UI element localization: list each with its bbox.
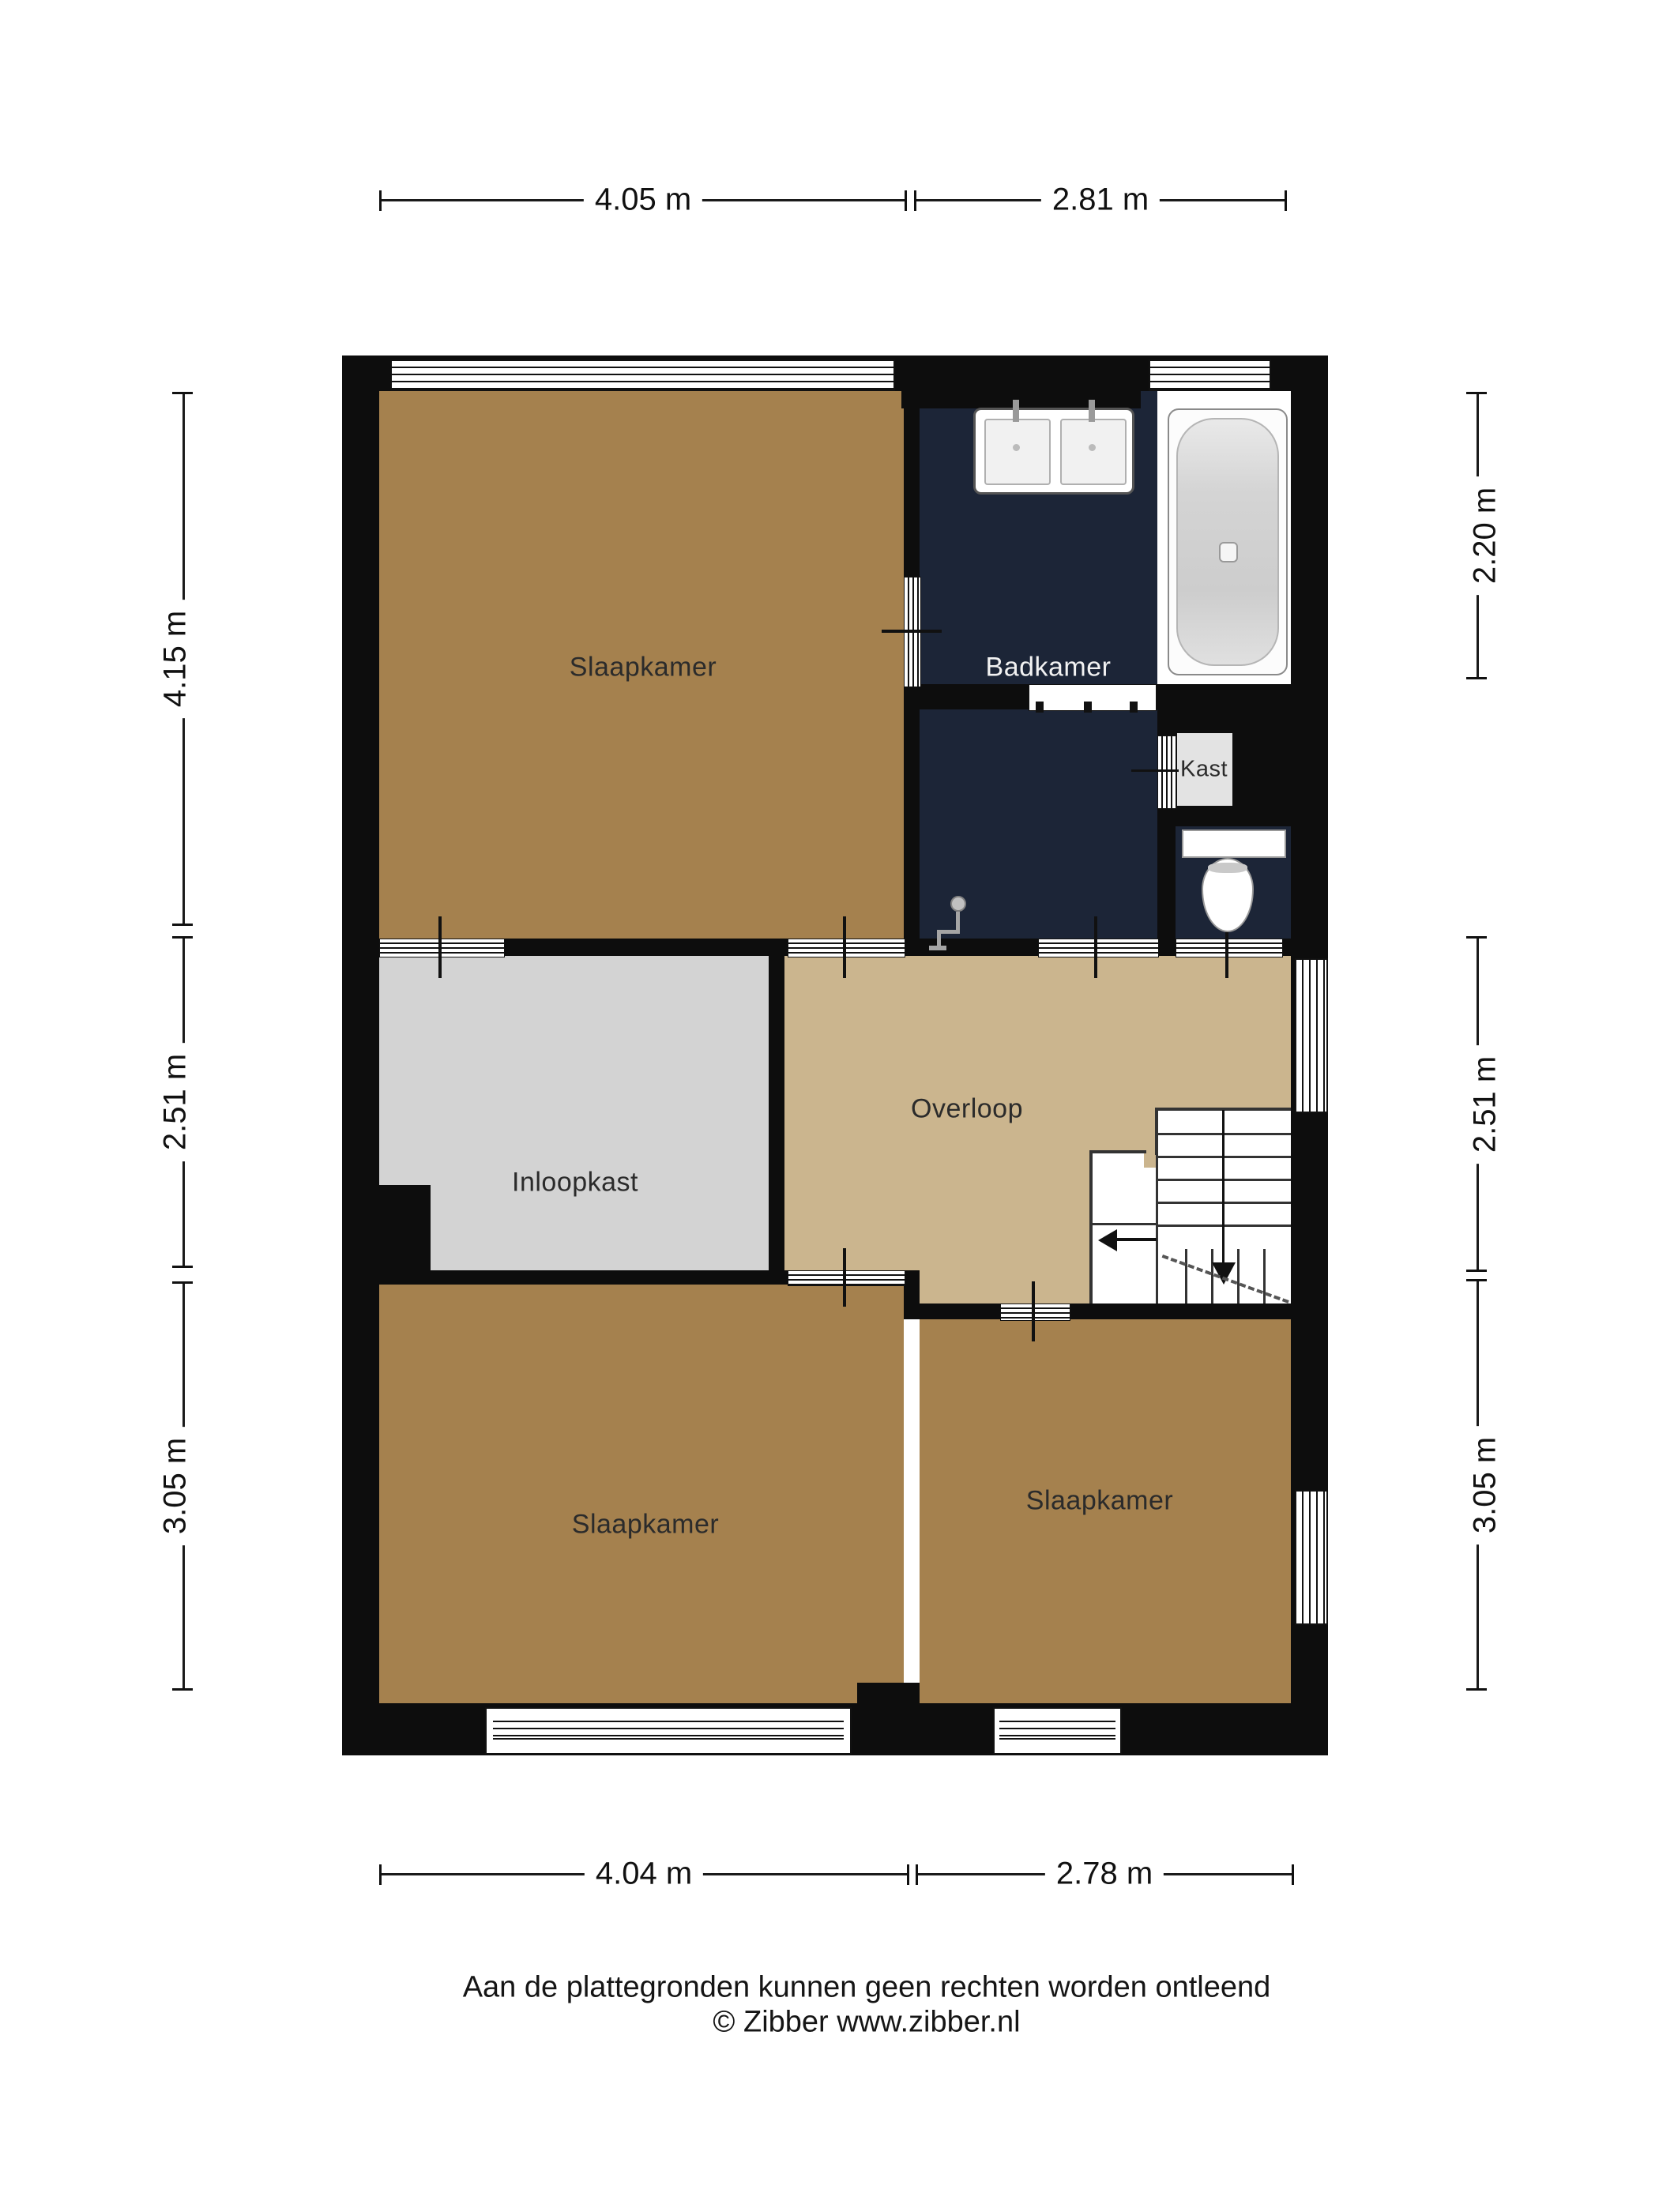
door-tick bbox=[438, 916, 442, 978]
room-label-closet: Kast bbox=[1180, 757, 1228, 783]
stair-tread bbox=[1157, 1179, 1292, 1181]
dim-tick bbox=[1466, 1270, 1487, 1272]
room-label-bathroom: Badkamer bbox=[986, 653, 1112, 683]
opening-tick bbox=[1036, 702, 1044, 713]
sink-basin-left bbox=[984, 419, 1051, 485]
floor-plan: Slaapkamer Badkamer Kast Inloopkast Over… bbox=[0, 0, 1659, 2212]
sink-drain-icon bbox=[1013, 444, 1020, 451]
stairs-left-arrow-shaft bbox=[1115, 1238, 1157, 1241]
room-label-bedroom-bottom-left: Slaapkamer bbox=[572, 1510, 719, 1540]
dim-tick bbox=[914, 190, 916, 211]
dim-label-right-top: 2.20 m bbox=[1466, 476, 1505, 595]
window-bottom-left-bedroom bbox=[485, 1707, 852, 1755]
sink-drain-icon bbox=[1089, 444, 1096, 451]
stair-winder-tread bbox=[1237, 1249, 1240, 1303]
window-top-bedroom bbox=[390, 359, 895, 391]
room-walk-in-closet bbox=[379, 956, 769, 1270]
window-glazing bbox=[999, 1721, 1115, 1740]
dim-tick bbox=[172, 936, 193, 939]
stair-tread-left bbox=[1092, 1223, 1157, 1225]
stair-tread bbox=[1157, 1224, 1292, 1227]
stairs-left-arrow-icon bbox=[1098, 1229, 1117, 1251]
dim-tick bbox=[1466, 677, 1487, 679]
footer-disclaimer: Aan de plattegronden kunnen geen rechten… bbox=[463, 1971, 1271, 2005]
opening-tick bbox=[1084, 702, 1092, 713]
dim-label-right-middle: 2.51 m bbox=[1466, 1045, 1505, 1164]
dim-label-left-top: 4.15 m bbox=[156, 600, 195, 718]
dim-tick bbox=[1466, 392, 1487, 394]
dim-label-left-middle: 2.51 m bbox=[156, 1043, 195, 1161]
wall-closet-landing-divider bbox=[769, 956, 784, 1270]
dim-tick bbox=[907, 1864, 909, 1885]
door-tick bbox=[1032, 1281, 1035, 1341]
door-landing-to-bedroom-right bbox=[1000, 1303, 1070, 1321]
dim-tick bbox=[1466, 1688, 1487, 1691]
window-bottom-right-bedroom bbox=[993, 1707, 1122, 1755]
wall-middle-stub bbox=[904, 1270, 920, 1319]
toilet-cistern-icon bbox=[1182, 829, 1286, 858]
stairs-walk-line bbox=[1222, 1110, 1224, 1264]
door-shower-to-landing bbox=[1038, 939, 1159, 957]
dim-label-left-bottom: 3.05 m bbox=[156, 1427, 195, 1545]
dim-tick bbox=[379, 1864, 382, 1885]
dim-tick bbox=[1466, 1279, 1487, 1281]
window-right-bedroom bbox=[1295, 1490, 1328, 1625]
stairs-edge-top bbox=[1155, 1108, 1294, 1111]
wall-exterior-left bbox=[342, 355, 379, 1755]
stairs-notch-top bbox=[1089, 1150, 1146, 1153]
door-toilet-to-landing bbox=[1176, 939, 1283, 957]
room-label-bedroom-top-left: Slaapkamer bbox=[570, 653, 717, 683]
stair-winder-tread bbox=[1185, 1249, 1187, 1303]
wall-bump-above-sink bbox=[901, 391, 1141, 408]
dim-label-bottom-right: 2.78 m bbox=[1045, 1855, 1164, 1894]
window-top-bathroom bbox=[1149, 359, 1271, 391]
dim-tick bbox=[905, 190, 907, 211]
room-label-walk-in-closet: Inloopkast bbox=[512, 1168, 638, 1198]
wall-bottom-center-stub bbox=[857, 1683, 920, 1755]
stair-tread bbox=[1157, 1133, 1292, 1135]
dim-tick bbox=[172, 1688, 193, 1691]
wall-middle-lower-right bbox=[920, 1303, 1292, 1319]
stairs-edge-left bbox=[1089, 1150, 1093, 1303]
stair-tread bbox=[1157, 1202, 1292, 1204]
toilet-seat-line bbox=[1208, 863, 1247, 873]
dim-label-top-left: 4.05 m bbox=[584, 181, 702, 220]
dim-tick bbox=[379, 190, 382, 211]
footer-copyright: © Zibber www.zibber.nl bbox=[713, 2006, 1020, 2040]
room-label-bedroom-bottom-right: Slaapkamer bbox=[1026, 1486, 1173, 1517]
dim-tick bbox=[172, 924, 193, 926]
stairs-divider bbox=[1156, 1110, 1158, 1303]
opening-tick bbox=[1130, 702, 1138, 713]
dim-tick bbox=[172, 1281, 193, 1284]
bathtub-drain-icon bbox=[1219, 542, 1238, 562]
faucet-icon bbox=[1013, 400, 1019, 422]
door-bedroom-to-walkin-closet bbox=[379, 939, 505, 957]
dim-tick bbox=[1292, 1864, 1294, 1885]
shower-base bbox=[929, 946, 946, 950]
door-tick bbox=[882, 630, 942, 633]
door-tick bbox=[843, 1248, 846, 1307]
stair-tread bbox=[1157, 1156, 1292, 1158]
door-tick bbox=[843, 916, 846, 978]
dim-tick bbox=[1466, 936, 1487, 939]
dim-tick bbox=[172, 392, 193, 394]
stairs-landing-notch bbox=[1092, 1153, 1144, 1168]
wall-walkin-closet-notch bbox=[379, 1185, 431, 1270]
door-landing-to-bedroom-left bbox=[788, 1270, 905, 1286]
door-bedroom-to-landing bbox=[788, 939, 905, 957]
faucet-icon bbox=[1089, 400, 1095, 422]
dim-label-top-right: 2.81 m bbox=[1041, 181, 1160, 220]
room-bedroom-bottom-left bbox=[379, 1285, 904, 1703]
window-glazing bbox=[493, 1721, 844, 1740]
dim-tick bbox=[172, 1266, 193, 1268]
window-right-landing bbox=[1295, 958, 1328, 1113]
room-label-landing: Overloop bbox=[911, 1094, 1023, 1125]
closet-label-leader-line bbox=[1131, 769, 1179, 772]
dim-tick bbox=[1285, 190, 1287, 211]
dim-label-right-bottom: 3.05 m bbox=[1466, 1426, 1505, 1544]
door-tick bbox=[1094, 916, 1097, 978]
door-closet bbox=[1157, 735, 1177, 809]
dim-label-bottom-left: 4.04 m bbox=[585, 1855, 703, 1894]
sink-basin-right bbox=[1060, 419, 1127, 485]
dim-tick bbox=[916, 1864, 918, 1885]
shower-head-icon bbox=[950, 896, 966, 912]
